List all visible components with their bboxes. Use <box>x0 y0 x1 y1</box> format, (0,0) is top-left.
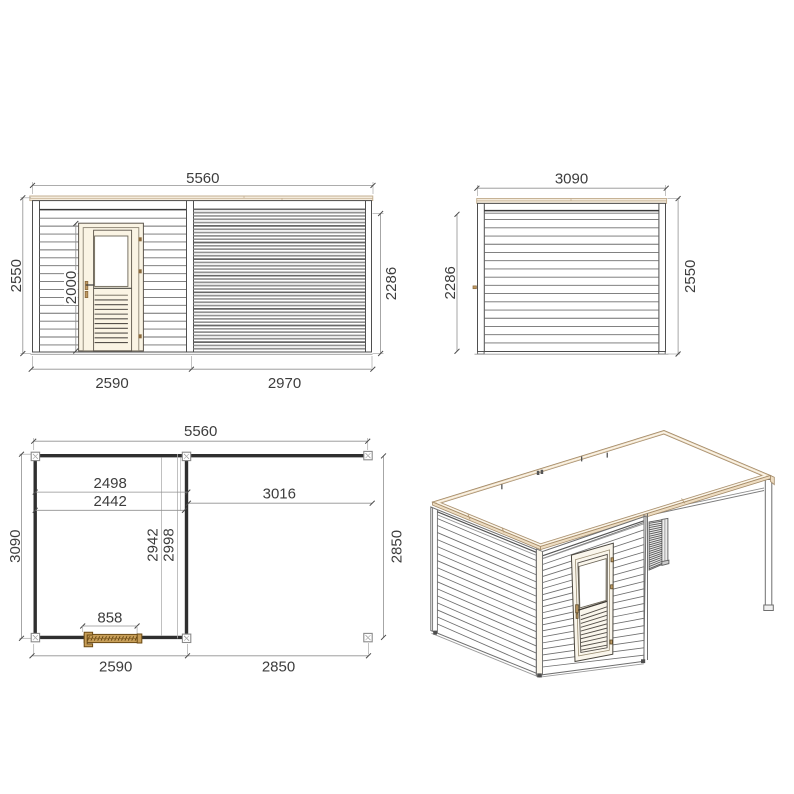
svg-text:2850: 2850 <box>389 530 406 563</box>
svg-text:2498: 2498 <box>94 475 127 492</box>
svg-text:2590: 2590 <box>99 659 132 676</box>
svg-text:3090: 3090 <box>7 530 24 563</box>
svg-text:3016: 3016 <box>263 486 296 503</box>
svg-text:2850: 2850 <box>262 659 295 676</box>
svg-text:2998: 2998 <box>161 528 178 561</box>
svg-text:2550: 2550 <box>8 259 25 292</box>
svg-text:2590: 2590 <box>95 375 128 392</box>
svg-text:5560: 5560 <box>184 423 217 440</box>
svg-text:2970: 2970 <box>268 375 301 392</box>
svg-text:3090: 3090 <box>555 171 588 188</box>
svg-text:2286: 2286 <box>442 266 459 299</box>
svg-text:2442: 2442 <box>94 493 127 510</box>
svg-text:2286: 2286 <box>383 267 400 300</box>
svg-text:858: 858 <box>97 610 122 627</box>
svg-text:2942: 2942 <box>145 528 162 561</box>
svg-text:2000: 2000 <box>63 271 80 304</box>
svg-text:2550: 2550 <box>682 260 699 293</box>
svg-text:5560: 5560 <box>186 170 219 187</box>
